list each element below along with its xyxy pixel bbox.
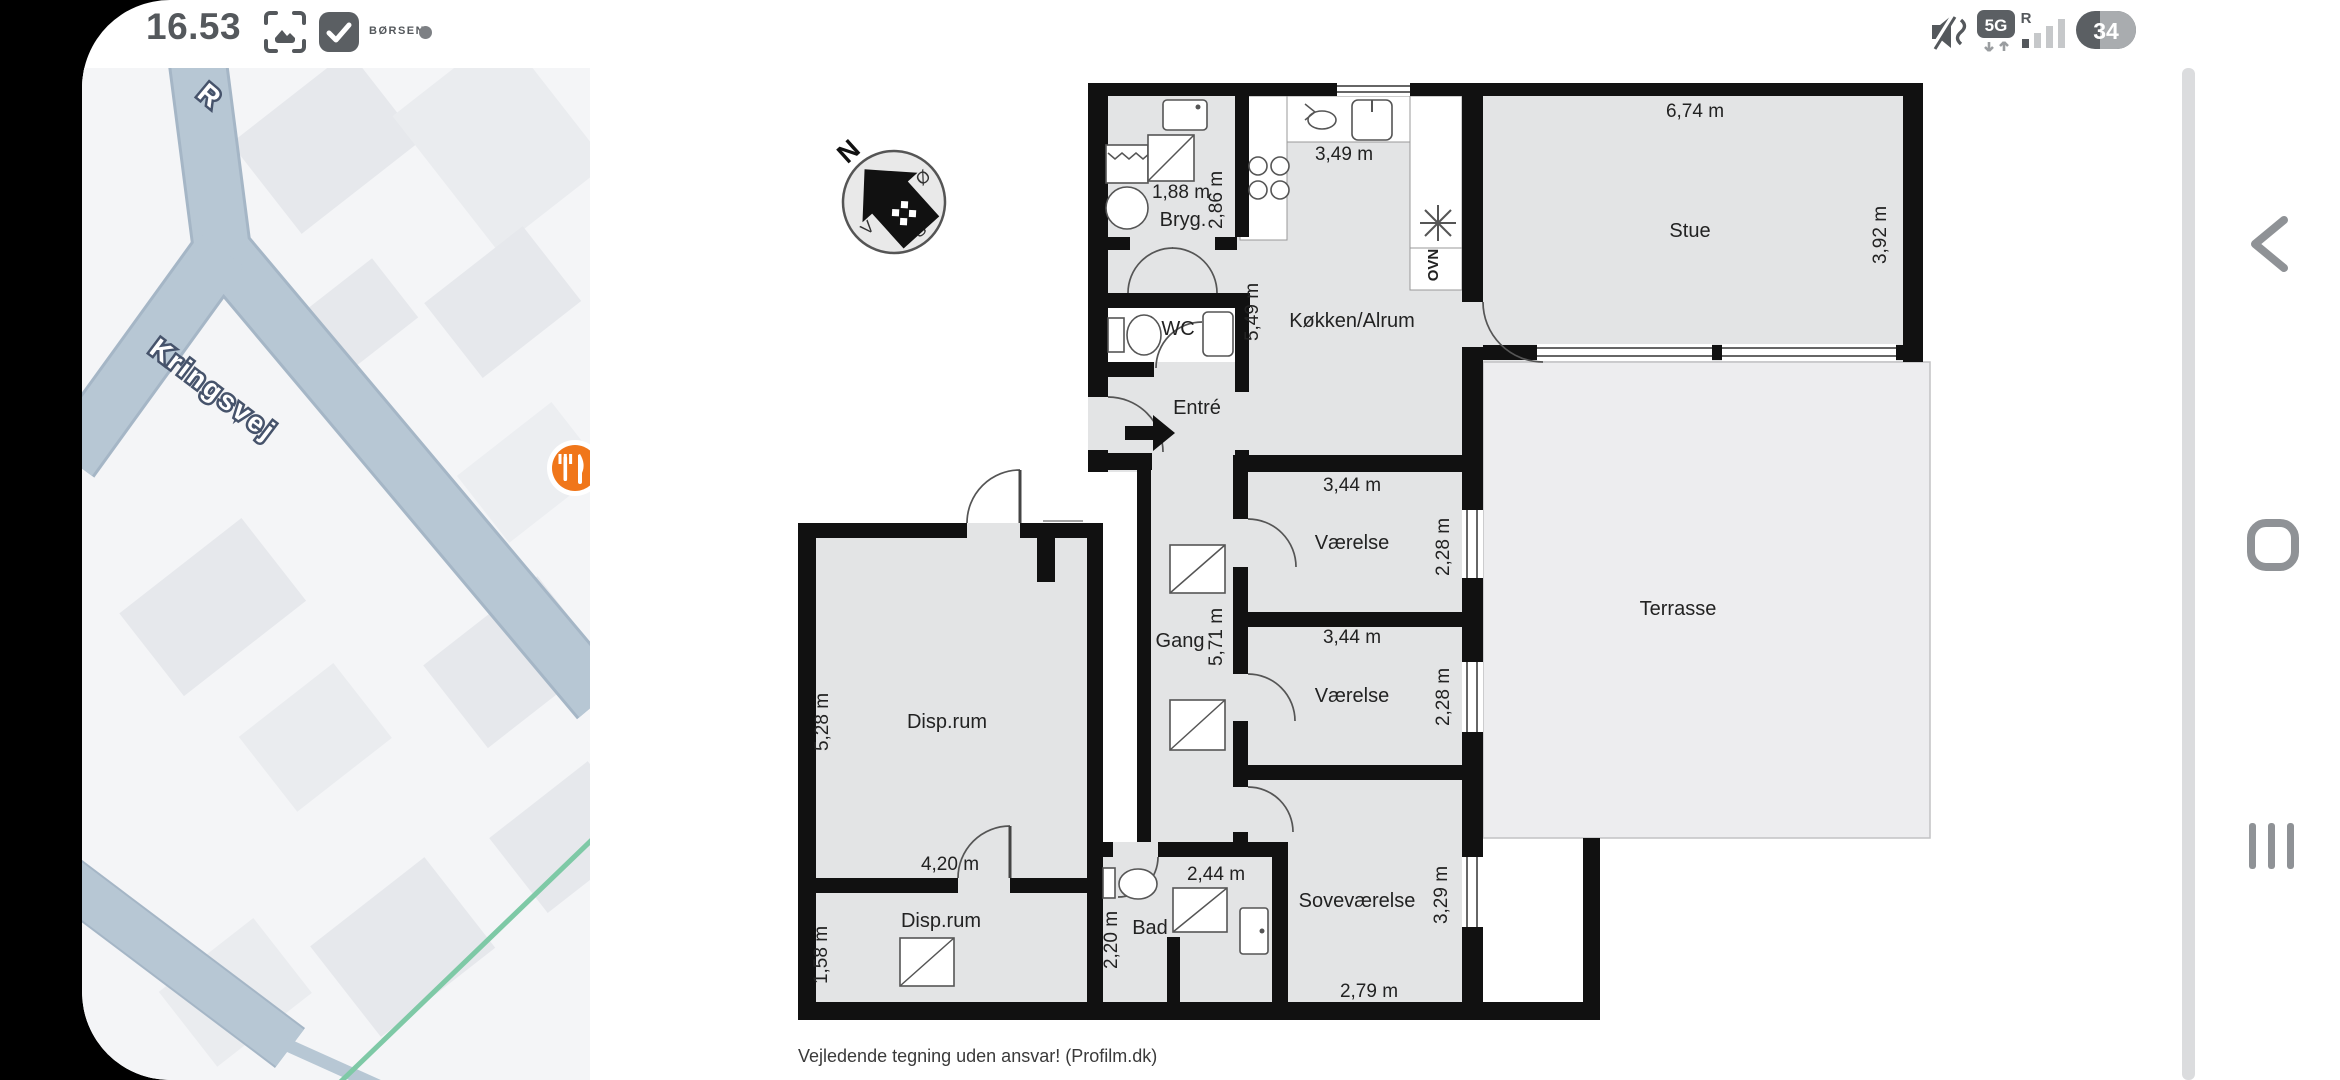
notification-source-label: BØRSEN [369,25,425,37]
bad-label: Bad [1132,917,1168,939]
bryg-width: 1,88 m [1152,182,1210,203]
sove-width: 2,79 m [1340,981,1398,1002]
entre-label: Entré [1173,397,1221,419]
dryer-icon [1106,187,1148,229]
bad-depth: 2,20 m [1101,911,1122,969]
room2-depth: 2,28 m [1433,668,1454,726]
kokken-depth: 5,49 m [1242,283,1263,341]
room2-label: Værelse [1315,685,1389,707]
disp2-label: Disp.rum [901,910,981,932]
floorplan-image[interactable]: N Ø S V 1,88 m Bryg. 2,86 m 3,49 m Køkke… [780,50,1960,1080]
toilet-bowl-icon [1127,315,1161,355]
compass-icon: N Ø S V [801,106,966,274]
scrollbar[interactable] [2182,68,2195,1080]
disp1-label: Disp.rum [907,711,987,733]
bad-width: 2,44 m [1187,864,1245,885]
nav-home-button[interactable] [2246,518,2300,572]
stue-width: 6,74 m [1666,101,1724,122]
bath-toilet-bowl-icon [1119,869,1157,899]
bath-toilet-tank-icon [1103,868,1115,898]
gang-label: Gang [1156,630,1205,652]
svg-text:R: R [2021,10,2032,27]
bryg-label: Bryg. [1160,209,1207,231]
disp1-width: 4,20 m [921,854,979,875]
stue-depth: 3,92 m [1870,206,1891,264]
signal-roaming-icon: R [2021,10,2065,48]
map-canvas: R Kringsvej [82,68,590,1080]
sove-label: Soveværelse [1299,890,1416,912]
nav-back-button[interactable] [2240,213,2302,275]
washer-icon [1106,145,1148,183]
porch-area [1037,465,1103,525]
stove-burner-icon [1271,181,1289,199]
room1-depth: 2,28 m [1433,518,1454,576]
status-time: 16.53 [146,6,241,48]
bryg-depth: 2,86 m [1206,171,1227,229]
status-right-icons: 5G R 34 [1930,8,2142,56]
map-pane[interactable]: R Kringsvej [82,68,590,1080]
room2-width: 3,44 m [1323,627,1381,648]
svg-text:34: 34 [2093,18,2119,44]
room1-label: Værelse [1315,532,1389,554]
sink-icon [1163,100,1207,130]
sove-depth: 3,29 m [1431,866,1452,924]
oven-label: OVN [1425,249,1442,282]
stove-burner-icon [1249,157,1267,175]
terrasse-label: Terrasse [1640,598,1717,620]
battery-icon: 34 [2076,11,2136,49]
mute-vibrate-icon [1932,16,1965,49]
wc-sink-icon [1203,312,1233,356]
notification-dot [419,26,432,39]
disp2-depth: 1,58 m [811,926,832,984]
svg-text:5G: 5G [1985,16,2008,35]
disp1-depth: 5,28 m [812,693,833,751]
screen-content: 16.53 BØRSEN 5G R [82,0,2340,1080]
room1-width: 3,44 m [1323,475,1381,496]
disclaimer-text: Vejledende tegning uden ansvar! (Profilm… [798,1046,1157,1066]
checkmark-icon [318,11,360,53]
network-5g-icon: 5G [1977,10,2015,51]
screenshot-icon [262,9,308,55]
kokken-label: Køkken/Alrum [1289,310,1415,332]
toilet-tank-icon [1108,318,1124,352]
nav-recents-button[interactable] [2248,822,2296,870]
kokken-width: 3,49 m [1315,144,1373,165]
stove-burner-icon [1249,181,1267,199]
gang-depth: 5,71 m [1206,608,1227,666]
freezer-snowflake-icon [1420,205,1456,241]
stove-burner-icon [1271,157,1289,175]
stue-label: Stue [1669,220,1710,242]
wc-label: WC [1161,318,1194,340]
